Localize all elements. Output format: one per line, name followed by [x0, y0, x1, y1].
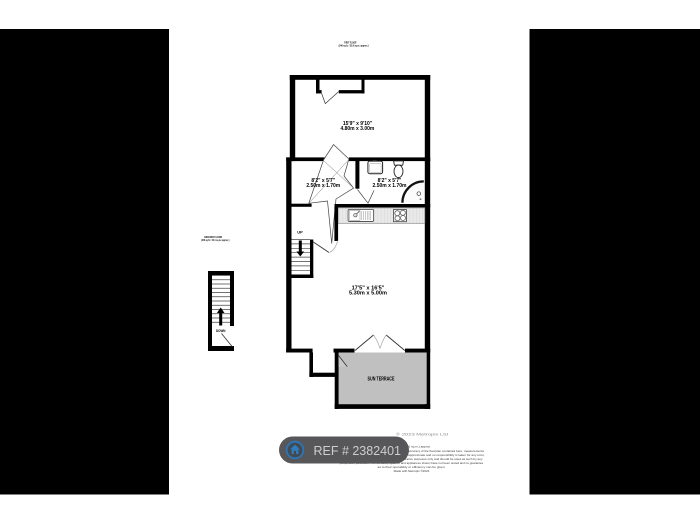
- svg-text:2.50m x 1.70m: 2.50m x 1.70m: [306, 183, 340, 189]
- svg-text:Made with Metropix ©2023: Made with Metropix ©2023: [394, 469, 430, 473]
- svg-text:(346 sq.ft. / 32.1 sq.m. appro: (346 sq.ft. / 32.1 sq.m. approx.): [201, 238, 229, 242]
- svg-text:(246 sq.ft. / 22.9 sq.m. appro: (246 sq.ft. / 22.9 sq.m. approx.): [339, 43, 369, 47]
- svg-text:4.80m x 3.00m: 4.80m x 3.00m: [340, 126, 374, 132]
- svg-text:SUN TERRACE: SUN TERRACE: [368, 377, 395, 383]
- svg-text:DOWN: DOWN: [216, 329, 226, 333]
- svg-text:2.50m x 1.70m: 2.50m x 1.70m: [373, 183, 407, 189]
- svg-text:REF # 2382401: REF # 2382401: [314, 443, 402, 458]
- svg-text:© 2023 Metropix Ltd: © 2023 Metropix Ltd: [396, 432, 448, 437]
- svg-text:5.30m x 5.00m: 5.30m x 5.00m: [349, 291, 387, 297]
